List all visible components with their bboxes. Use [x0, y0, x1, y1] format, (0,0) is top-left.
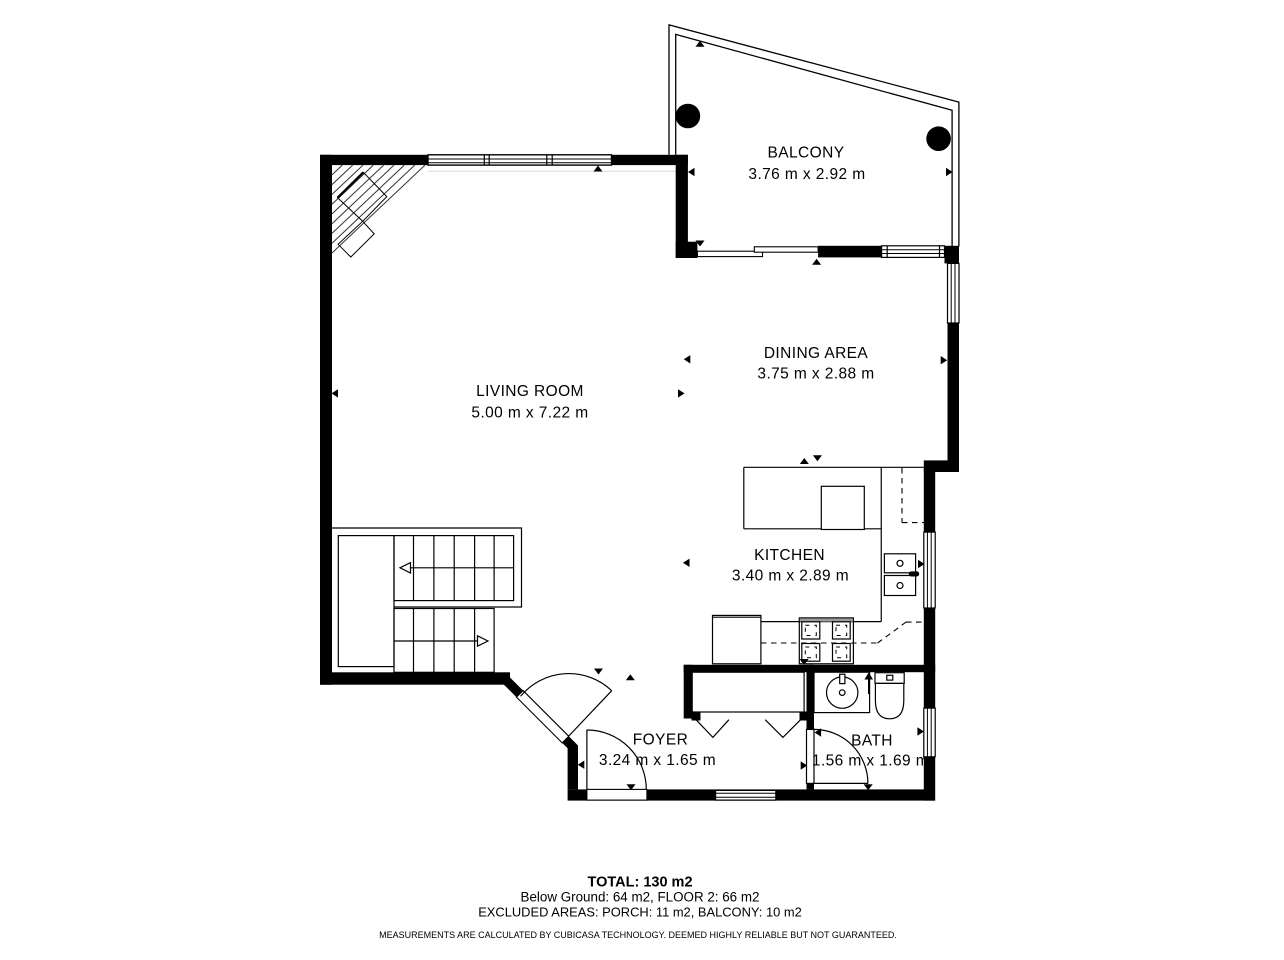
svg-text:EXCLUDED AREAS: PORCH: 11 m2,: EXCLUDED AREAS: PORCH: 11 m2, BALCONY: 1…: [478, 904, 802, 919]
svg-text:FOYER: FOYER: [633, 732, 688, 749]
svg-text:3.40 m x 2.89 m: 3.40 m x 2.89 m: [732, 568, 849, 585]
svg-text:Below Ground: 64 m2, FLOOR 2:: Below Ground: 64 m2, FLOOR 2: 66 m2: [521, 889, 760, 904]
svg-text:KITCHEN: KITCHEN: [754, 547, 825, 564]
svg-text:3.75 m x 2.88 m: 3.75 m x 2.88 m: [757, 366, 874, 383]
svg-text:3.76 m x 2.92 m: 3.76 m x 2.92 m: [748, 166, 865, 183]
svg-text:TOTAL: 130 m2: TOTAL: 130 m2: [587, 875, 692, 891]
svg-text:3.24 m x 1.65 m: 3.24 m x 1.65 m: [599, 752, 716, 769]
svg-text:5.00 m x 7.22 m: 5.00 m x 7.22 m: [471, 405, 588, 422]
svg-text:LIVING ROOM: LIVING ROOM: [476, 383, 584, 400]
svg-text:DINING AREA: DINING AREA: [764, 345, 869, 362]
svg-text:1.56 m x 1.69 m: 1.56 m x 1.69 m: [812, 753, 929, 770]
svg-text:BALCONY: BALCONY: [768, 145, 845, 162]
svg-text:MEASUREMENTS ARE CALCULATED BY: MEASUREMENTS ARE CALCULATED BY CUBICASA …: [379, 930, 897, 940]
svg-text:BATH: BATH: [851, 732, 893, 749]
